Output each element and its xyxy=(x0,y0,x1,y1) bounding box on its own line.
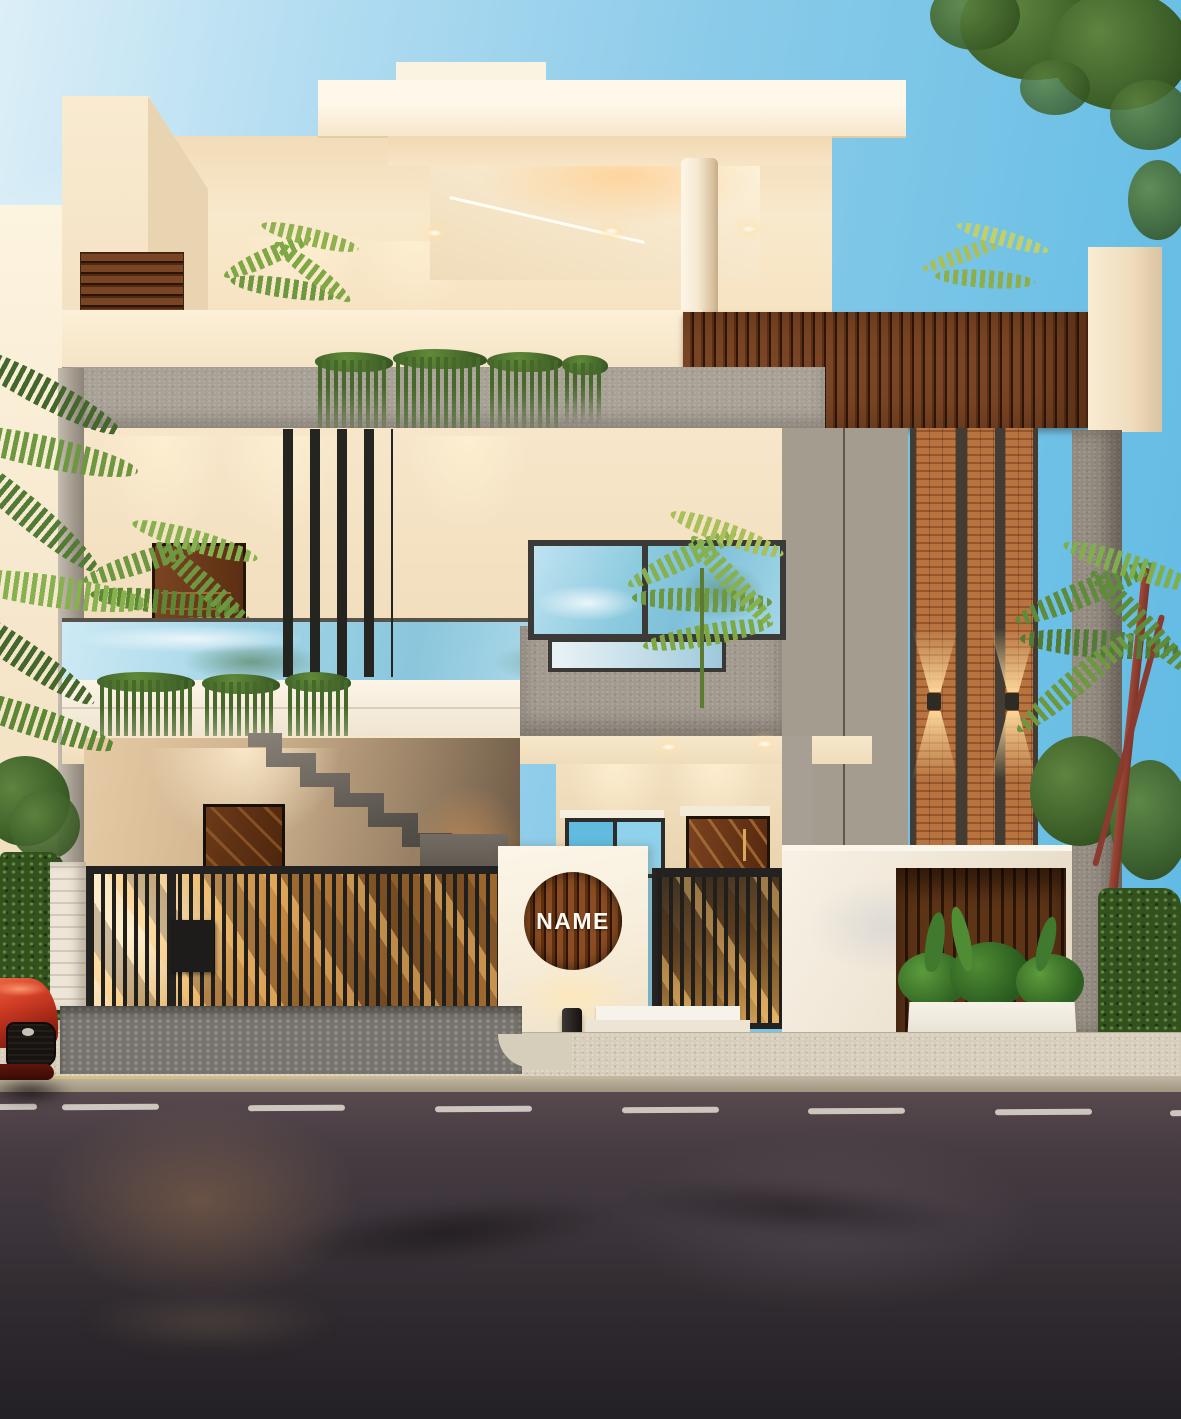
house-name-text: NAME xyxy=(524,872,622,970)
brick-strip xyxy=(967,428,995,846)
wall-light-wash xyxy=(402,436,532,536)
cobblestone-apron xyxy=(60,1006,522,1074)
palm-stem xyxy=(700,568,704,708)
recessed-light xyxy=(758,741,771,747)
palm-fronds-left-edge xyxy=(0,355,170,805)
palm-frond xyxy=(0,561,151,621)
curb-face xyxy=(0,1076,1181,1092)
hedge-right xyxy=(1098,888,1181,1038)
terrace-palm-right xyxy=(920,218,1050,318)
palm-frond xyxy=(0,415,141,488)
lane-marking xyxy=(622,1107,719,1113)
recessed-light xyxy=(742,226,755,232)
lane-marking xyxy=(1170,1110,1181,1116)
tree-foliage xyxy=(1128,160,1181,240)
vine-strands xyxy=(565,363,605,425)
road xyxy=(0,1092,1181,1419)
planter-plants xyxy=(898,912,1086,1016)
curb-lit-edge xyxy=(0,1076,709,1079)
hanging-vines xyxy=(565,355,605,425)
window-palm xyxy=(612,508,797,718)
gate-motor-box xyxy=(170,920,214,972)
tree-foliage xyxy=(1110,80,1181,150)
car-badge xyxy=(22,1028,34,1036)
plant-foliage xyxy=(1016,954,1084,1010)
tree-canopy xyxy=(930,0,1181,170)
lane-marking xyxy=(248,1105,345,1111)
pillar-right-small xyxy=(782,736,812,852)
gate-slats xyxy=(658,877,792,1023)
entrance-step-upper xyxy=(596,1006,740,1020)
red-car xyxy=(0,978,66,1110)
roof-column xyxy=(681,158,718,314)
lane-marking xyxy=(995,1109,1092,1115)
car-shadow xyxy=(0,1078,70,1104)
tree-foliage xyxy=(1020,60,1090,115)
hanging-vines xyxy=(490,352,560,440)
palm-frond xyxy=(934,267,1035,292)
lane-marking xyxy=(808,1108,905,1114)
architectural-render-scene: NAME xyxy=(0,0,1181,1419)
canopy-slab xyxy=(318,80,906,138)
tire-mark xyxy=(80,1292,340,1352)
parapet-top-right xyxy=(1088,247,1162,432)
vertical-slat-screen xyxy=(283,429,393,677)
palm-frond xyxy=(641,613,773,657)
wall-light-fixture xyxy=(927,693,941,710)
recessed-light xyxy=(428,230,441,236)
palm-crown-right xyxy=(1000,540,1181,760)
chevron-right-half xyxy=(844,428,908,846)
recessed-light xyxy=(605,228,618,234)
gate-slats xyxy=(90,874,504,1020)
entrance-window-sill xyxy=(560,810,664,818)
door-handle xyxy=(743,829,746,861)
car-hood-highlight xyxy=(0,982,46,996)
name-medallion: NAME xyxy=(524,872,622,970)
terrace-palm-left xyxy=(220,218,360,322)
entrance-door-header xyxy=(680,806,770,816)
lane-marking xyxy=(435,1106,532,1112)
main-gate xyxy=(84,866,510,1026)
canopy-soffit xyxy=(388,136,832,166)
chevron-seam xyxy=(843,428,845,846)
lane-marking xyxy=(62,1104,159,1110)
recessed-light xyxy=(662,744,675,750)
pedestrian-gate xyxy=(652,868,798,1029)
